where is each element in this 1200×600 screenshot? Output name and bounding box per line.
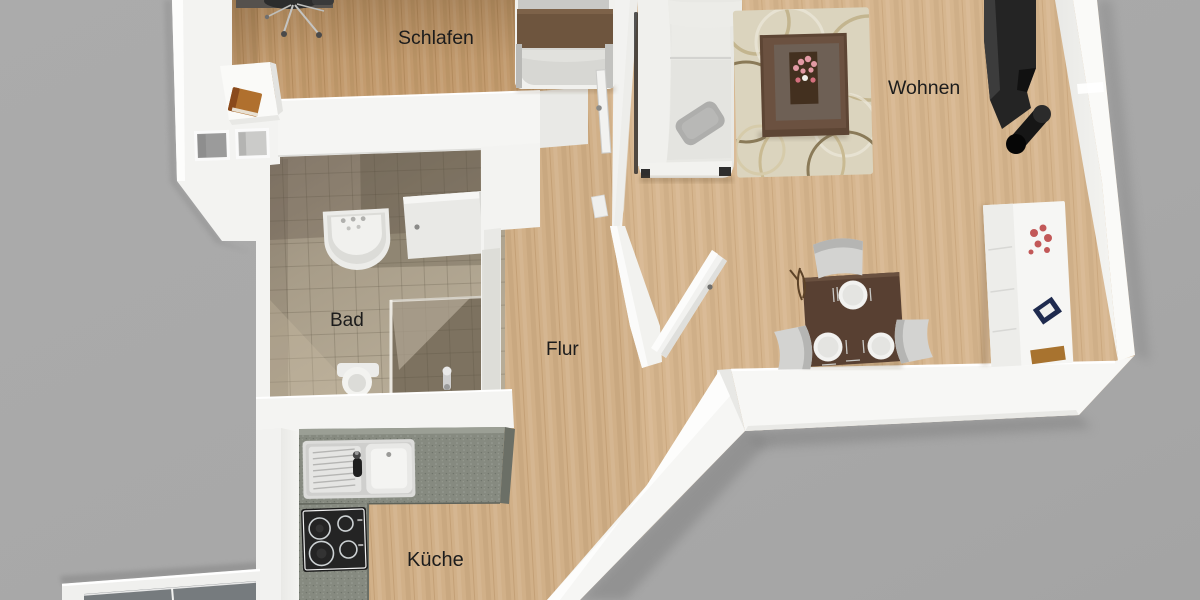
- svg-text:Schlafen: Schlafen: [398, 27, 474, 49]
- svg-text:Küche: Küche: [407, 549, 464, 571]
- svg-text:Wohnen: Wohnen: [888, 77, 960, 99]
- svg-text:Flur: Flur: [546, 339, 579, 360]
- svg-text:Bad: Bad: [330, 310, 364, 331]
